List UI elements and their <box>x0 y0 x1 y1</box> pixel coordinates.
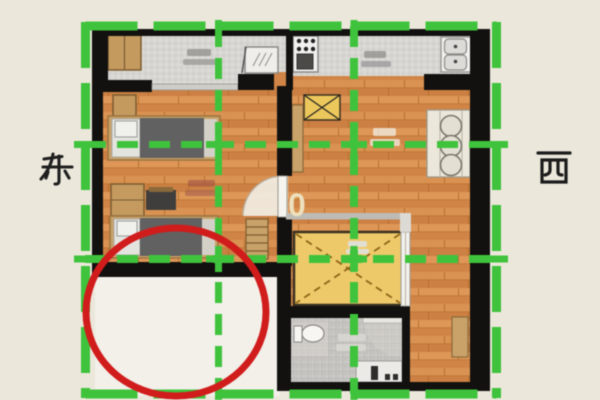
svg-text:0: 0 <box>288 187 306 223</box>
